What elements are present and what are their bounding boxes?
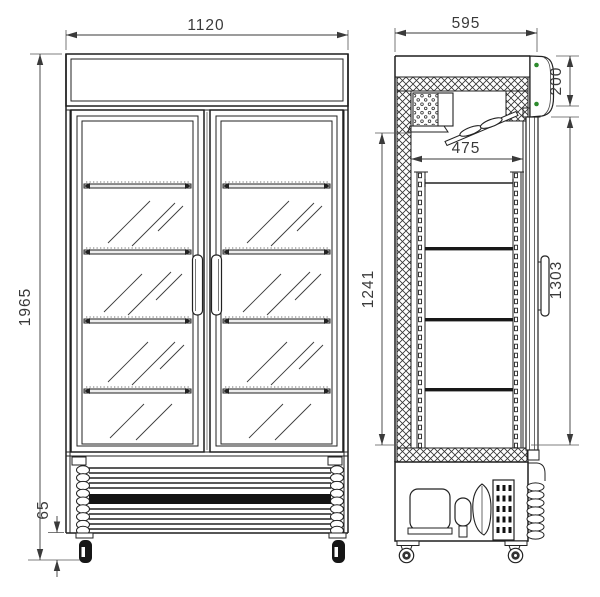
technical-drawing: 1120 595 1965 65 200	[0, 0, 600, 597]
shelf	[84, 387, 191, 394]
shelf	[84, 317, 191, 324]
shelf	[84, 248, 191, 255]
dim-door-height-label: 1303	[548, 261, 565, 299]
shelf	[223, 387, 330, 394]
evaporator-unit	[408, 93, 453, 132]
condenser-coil	[493, 480, 514, 540]
dim-front-height-label: 1965	[17, 288, 34, 326]
door-section-side	[523, 108, 540, 460]
grille-scallops-left	[77, 466, 90, 535]
shelf	[223, 317, 330, 324]
caster-side-right	[505, 541, 527, 563]
condenser-grille-side	[527, 463, 545, 539]
dim-interior-height-label: 1241	[360, 270, 377, 308]
shelf	[223, 182, 330, 189]
caster-side-left	[397, 541, 419, 563]
shelf-post-front	[510, 172, 524, 448]
dim-caster-base-label: 65	[35, 500, 52, 519]
shelves-side	[425, 179, 513, 391]
shelf	[84, 182, 191, 189]
door-handle-left	[193, 255, 203, 315]
caster-front-left	[76, 533, 93, 563]
filter-drier	[455, 498, 471, 537]
dim-header-height-label: 200	[548, 67, 565, 96]
door-handle-right	[212, 255, 222, 315]
dim-interior-depth-label: 475	[452, 140, 481, 157]
dim-side-depth: 595	[395, 15, 537, 52]
dim-interior-depth: 475	[411, 140, 523, 159]
dim-caster-base: 65	[35, 500, 64, 577]
shelf-post-rear	[414, 172, 428, 448]
glass-door-left	[71, 110, 204, 452]
grille-scallops-right	[331, 466, 344, 535]
indicator-dot-top	[534, 63, 539, 68]
condenser-fan-side	[473, 484, 491, 535]
dim-front-width: 1120	[66, 17, 348, 50]
dim-front-width-label: 1120	[187, 17, 224, 34]
dim-side-depth-label: 595	[452, 15, 481, 32]
machine-compartment	[395, 462, 528, 541]
header-sign-panel	[66, 54, 348, 106]
front-view	[66, 54, 348, 563]
indicator-dot-bottom	[534, 102, 539, 107]
glass-door-right	[210, 110, 343, 452]
compressor	[408, 489, 452, 534]
shelf	[223, 248, 330, 255]
side-view	[395, 56, 554, 563]
caster-front-right	[329, 533, 346, 563]
drawing-canvas: 1120 595 1965 65 200	[0, 0, 600, 597]
condenser-grille-front	[77, 466, 344, 535]
kick-panel-front	[66, 452, 348, 465]
